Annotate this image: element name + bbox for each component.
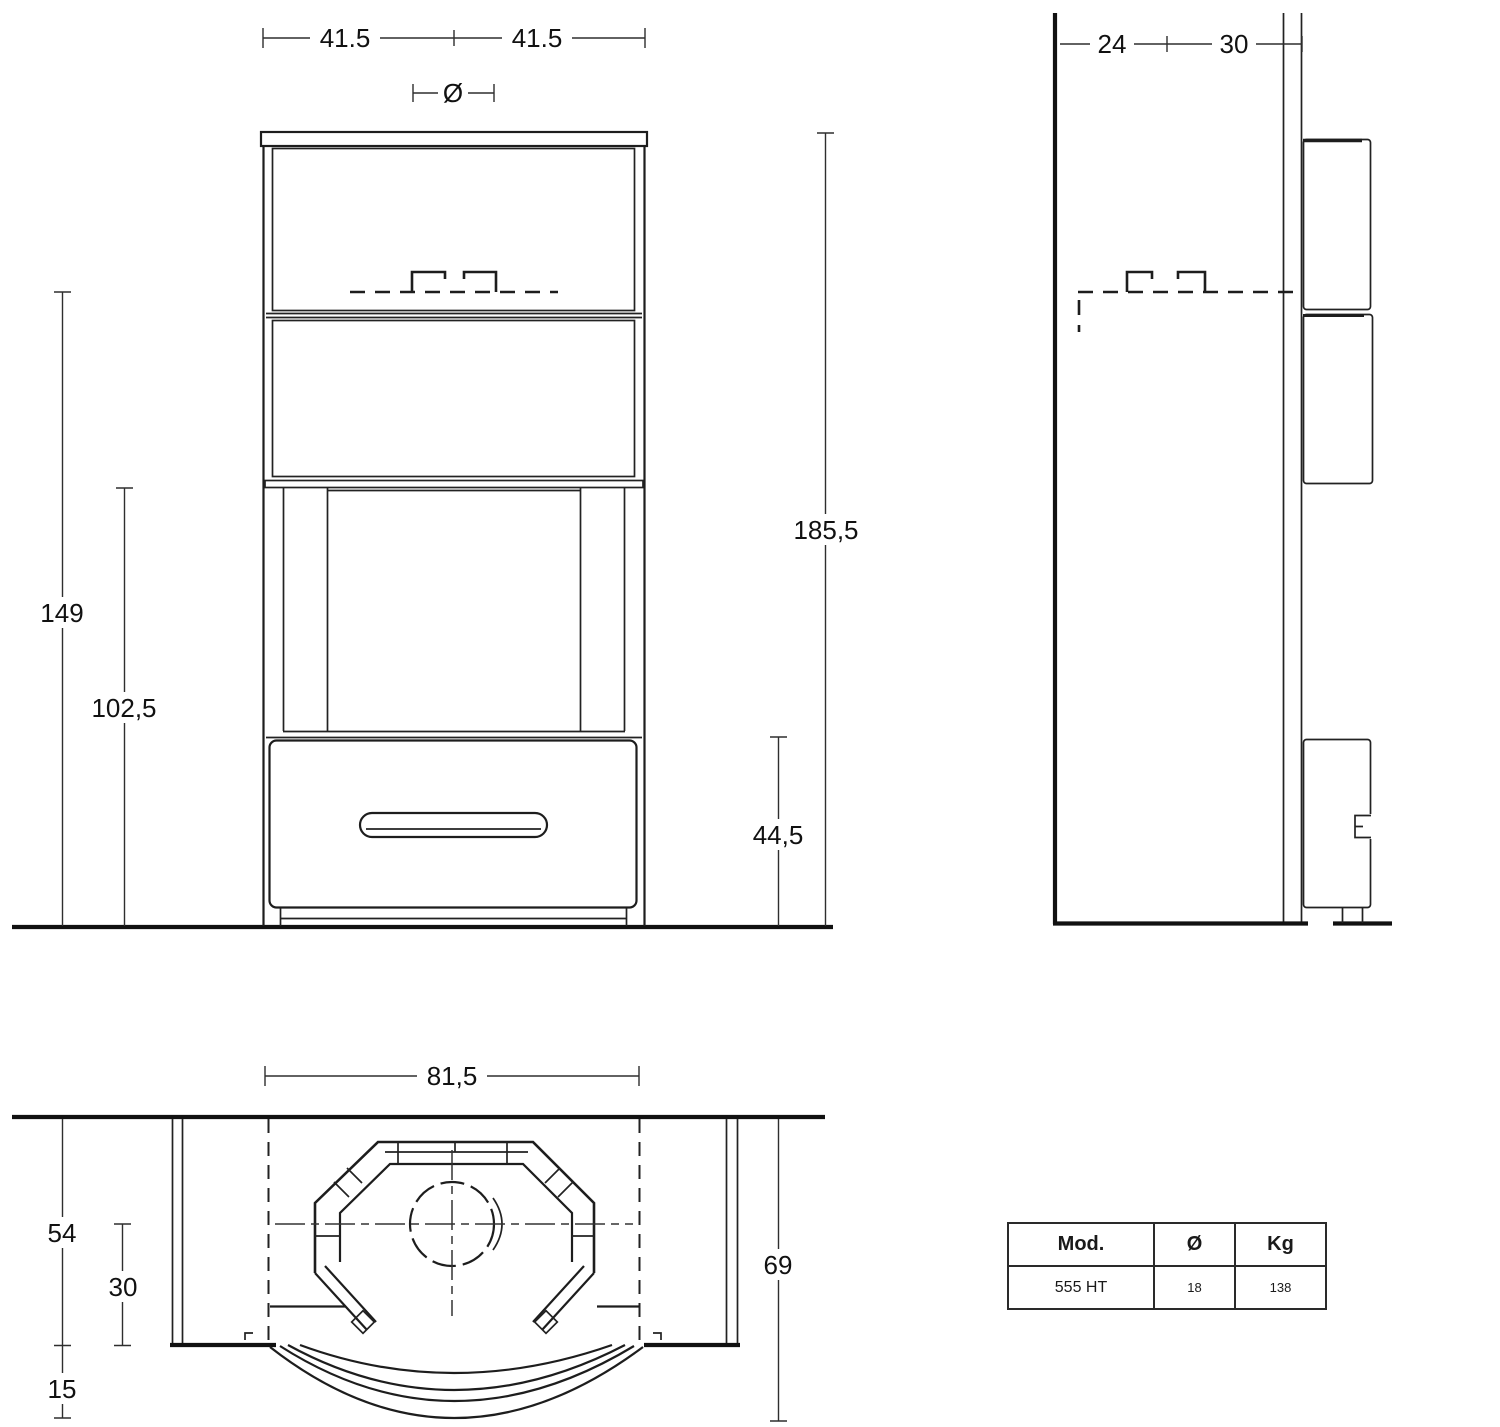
dim-side-depth-front: 30 xyxy=(1220,29,1249,59)
front-hood-band-1 xyxy=(273,149,635,311)
front-hood-divider xyxy=(266,314,642,318)
dim-side-depth-rear: 24 xyxy=(1098,29,1127,59)
dim-top-bow-depth: 15 xyxy=(48,1374,77,1404)
front-top-cap xyxy=(261,132,647,146)
dim-front-base-height: 44,5 xyxy=(753,820,804,850)
front-flue-dashed-outline xyxy=(350,272,558,292)
spec-value-weight: 138 xyxy=(1236,1267,1325,1308)
top-hinge-right xyxy=(535,1311,558,1334)
stove-technical-drawing: 41.5 41.5 Ø 149 102,5 185,5 44,5 xyxy=(0,0,1500,1427)
top-door-jambs xyxy=(315,1266,594,1330)
dim-front-total-height: 185,5 xyxy=(793,515,858,545)
dim-front-height-firebox: 102,5 xyxy=(91,693,156,723)
dim-front-height-hood: 149 xyxy=(40,598,83,628)
front-view-dimensions: 41.5 41.5 Ø 149 102,5 185,5 44,5 xyxy=(33,23,865,926)
side-hood-panel-1 xyxy=(1303,140,1371,310)
front-hood-band-2 xyxy=(273,321,635,477)
top-left-side-wall xyxy=(173,1119,183,1343)
top-octagon-firebox xyxy=(245,1142,661,1340)
dim-front-flue-diameter: Ø xyxy=(443,78,463,108)
top-bow-door-arcs xyxy=(270,1345,643,1418)
dim-top-depth-center-front: 30 xyxy=(109,1272,138,1302)
side-hood-panel-2 xyxy=(1303,315,1373,484)
side-view-dimensions: 24 30 xyxy=(1060,29,1302,59)
dim-top-total-depth: 69 xyxy=(764,1250,793,1280)
side-flue-dashed-outline xyxy=(1078,272,1302,332)
side-front-panel-lines xyxy=(1284,13,1302,924)
top-latch-marks xyxy=(245,1333,661,1340)
top-hinge-left xyxy=(352,1311,375,1334)
side-foot xyxy=(1343,908,1363,923)
technical-drawing-page: 41.5 41.5 Ø 149 102,5 185,5 44,5 xyxy=(0,0,1500,1427)
spec-header-weight: Kg xyxy=(1236,1224,1325,1267)
side-base-panel xyxy=(1304,740,1376,908)
side-view xyxy=(1053,13,1392,924)
front-base-drawer xyxy=(270,741,637,908)
front-plinth xyxy=(280,908,627,926)
front-cornice xyxy=(265,481,643,488)
spec-header-diameter: Ø xyxy=(1155,1224,1236,1267)
spec-table: Mod. Ø Kg 555 HT 18 138 xyxy=(1007,1222,1327,1310)
dim-top-depth: 54 xyxy=(48,1218,77,1248)
dim-front-half-width-left: 41.5 xyxy=(320,23,371,53)
front-view xyxy=(12,132,833,927)
dim-front-half-width-right: 41.5 xyxy=(512,23,563,53)
spec-value-diameter: 18 xyxy=(1155,1267,1236,1308)
dim-top-width: 81,5 xyxy=(427,1061,478,1091)
drawer-handle xyxy=(360,813,547,837)
front-firebox xyxy=(266,488,642,738)
top-right-side-wall xyxy=(727,1119,738,1343)
top-view xyxy=(12,1117,825,1418)
front-body-sides xyxy=(264,146,645,926)
top-flue-outlet xyxy=(275,1150,633,1316)
spec-value-model: 555 HT xyxy=(1009,1267,1155,1308)
spec-header-model: Mod. xyxy=(1009,1224,1155,1267)
